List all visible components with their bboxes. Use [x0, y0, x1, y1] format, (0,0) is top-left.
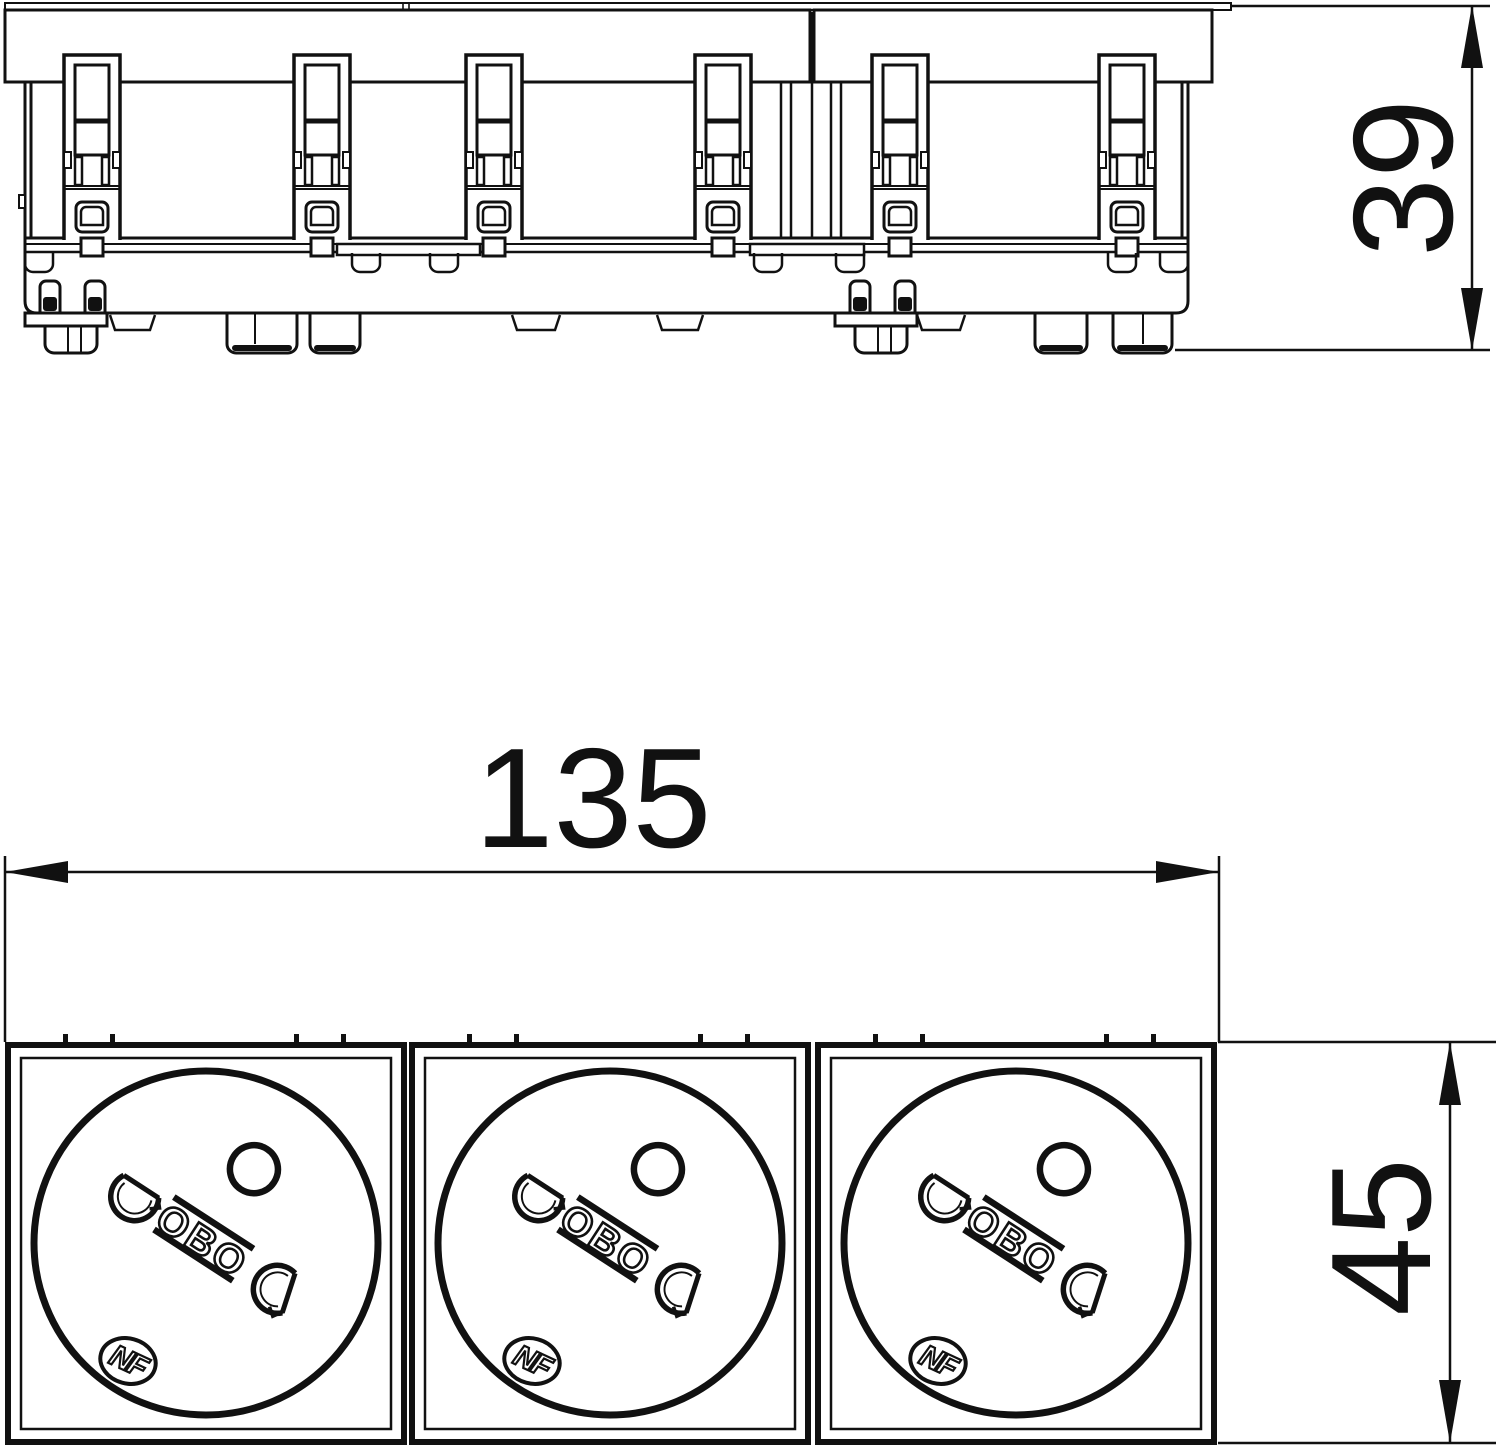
- width-label: 135: [475, 719, 712, 878]
- device-feet: [227, 314, 1172, 353]
- dimension-width-135: 135: [5, 719, 1219, 1042]
- depth-label: 39: [1324, 99, 1483, 257]
- device-base: [25, 252, 1188, 313]
- height-label: 45: [1302, 1158, 1461, 1316]
- front-view: OBO NF OBO NF OBO NF: [8, 1034, 1214, 1442]
- technical-drawing: 39 135 OBO NF OBO NF: [0, 0, 1500, 1446]
- dimension-depth-39: 39: [1175, 5, 1490, 351]
- socket-module-3: OBO NF: [818, 1034, 1214, 1442]
- socket-module-1: OBO NF: [8, 1034, 404, 1442]
- socket-module-2: OBO NF: [412, 1034, 808, 1442]
- top-view: [5, 3, 1231, 353]
- drawing-page: 39 135 OBO NF OBO NF: [0, 0, 1500, 1446]
- cover-plate-double: [5, 10, 810, 82]
- dimension-height-45: 45: [1218, 1042, 1496, 1443]
